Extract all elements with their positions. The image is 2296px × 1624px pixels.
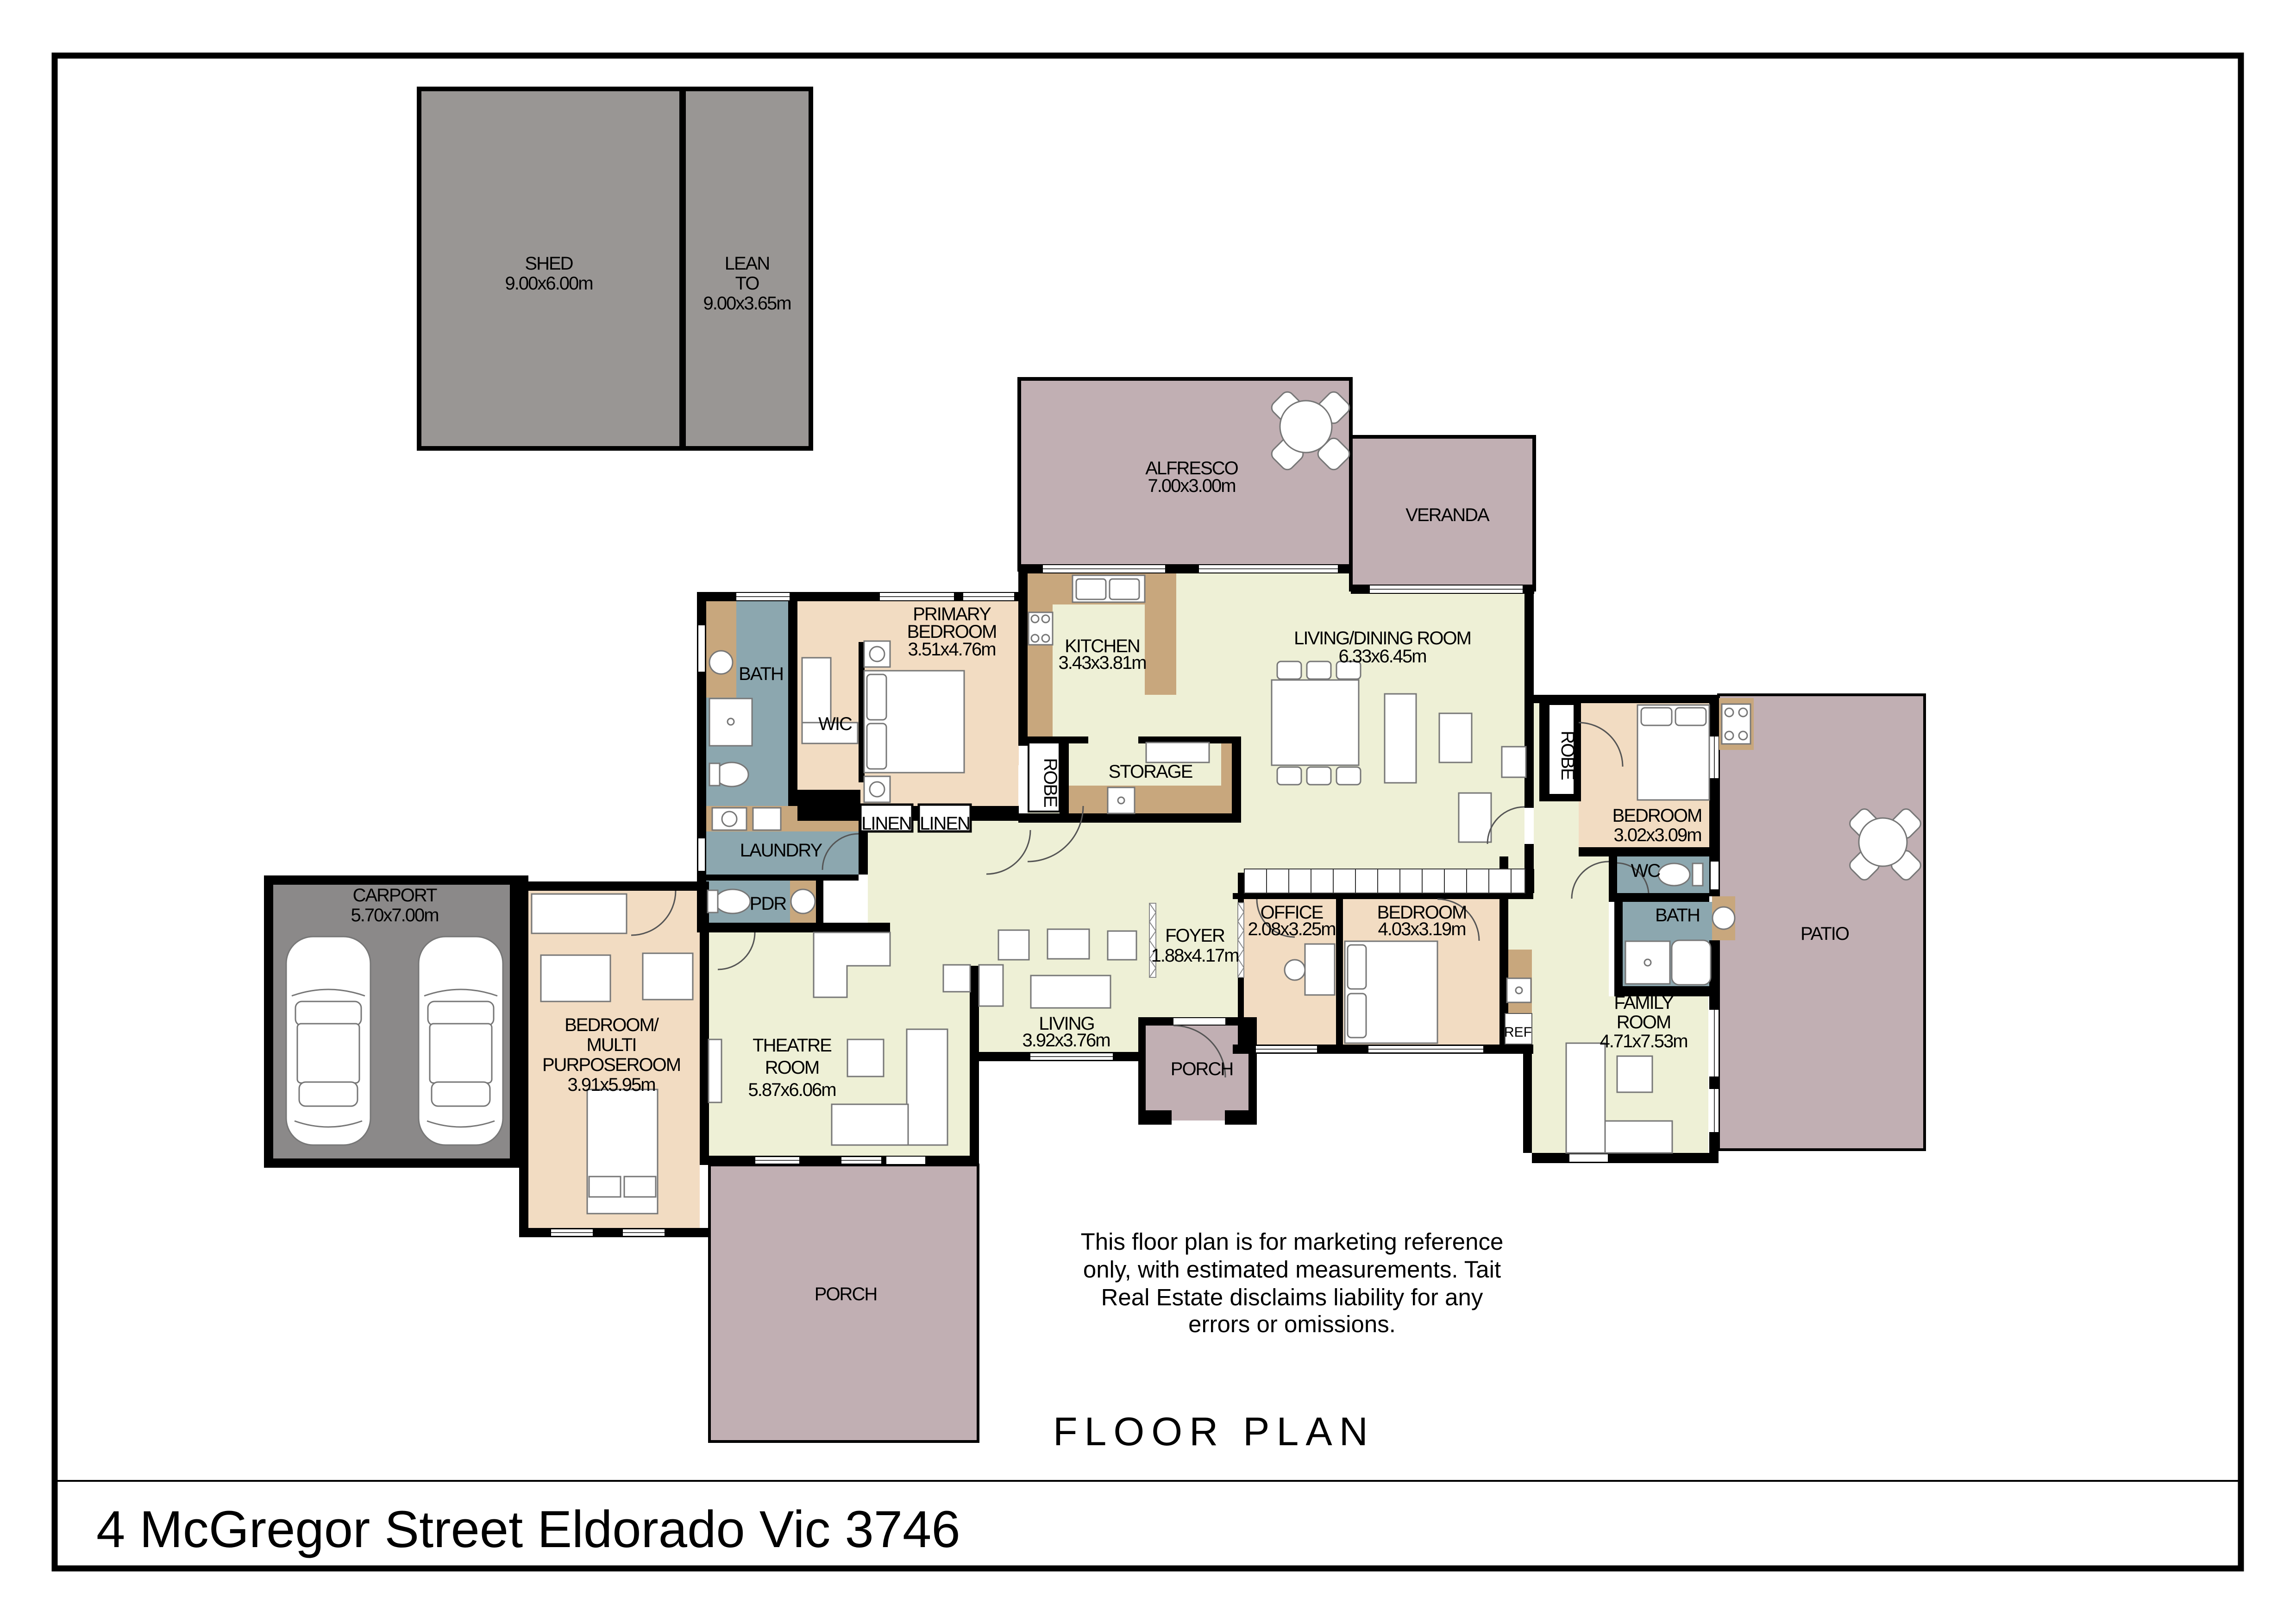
svg-text:VERANDA: VERANDA	[1405, 505, 1490, 525]
svg-text:1.88x4.17m: 1.88x4.17m	[1151, 945, 1238, 966]
svg-text:BEDROOM: BEDROOM	[1612, 806, 1702, 826]
svg-text:REF: REF	[1504, 1025, 1532, 1040]
svg-text:BEDROOM/: BEDROOM/	[565, 1015, 659, 1035]
svg-text:SHED: SHED	[525, 253, 572, 274]
svg-text:errors or omissions.: errors or omissions.	[1188, 1311, 1396, 1337]
svg-text:LINEN: LINEN	[920, 813, 970, 834]
svg-text:5.87x6.06m: 5.87x6.06m	[748, 1080, 835, 1100]
svg-text:LINEN: LINEN	[861, 813, 911, 834]
svg-text:WC: WC	[1631, 861, 1661, 881]
svg-text:ROOM: ROOM	[1617, 1012, 1670, 1032]
svg-text:2.08x3.25m: 2.08x3.25m	[1248, 919, 1335, 939]
svg-text:4 McGregor Street Eldorado Vic: 4 McGregor Street Eldorado Vic 3746	[96, 1500, 960, 1558]
svg-text:MULTI: MULTI	[586, 1035, 636, 1055]
svg-text:BATH: BATH	[1655, 905, 1700, 925]
svg-text:ROBE: ROBE	[1557, 730, 1578, 780]
svg-text:PURPOSEROOM: PURPOSEROOM	[542, 1055, 680, 1075]
svg-text:THEATRE: THEATRE	[753, 1035, 831, 1056]
svg-text:PATIO: PATIO	[1800, 924, 1849, 944]
svg-text:FAMILY: FAMILY	[1614, 993, 1674, 1013]
svg-text:TO: TO	[735, 273, 759, 294]
svg-text:STORAGE: STORAGE	[1109, 762, 1192, 782]
svg-text:5.70x7.00m: 5.70x7.00m	[351, 905, 438, 925]
svg-text:3.43x3.81m: 3.43x3.81m	[1058, 653, 1146, 673]
svg-text:3.02x3.09m: 3.02x3.09m	[1613, 825, 1701, 845]
svg-text:ROOM: ROOM	[765, 1057, 819, 1078]
svg-text:ROBE: ROBE	[1040, 758, 1060, 807]
svg-text:BATH: BATH	[739, 664, 783, 684]
svg-text:9.00x6.00m: 9.00x6.00m	[505, 273, 592, 294]
svg-text:This floor plan is for marketi: This floor plan is for marketing referen…	[1081, 1228, 1504, 1255]
svg-text:FLOOR PLAN: FLOOR PLAN	[1053, 1410, 1375, 1454]
svg-text:3.51x4.76m: 3.51x4.76m	[908, 639, 995, 660]
svg-text:Real Estate disclaims liabilit: Real Estate disclaims liability for any	[1101, 1284, 1483, 1310]
svg-text:LAUNDRY: LAUNDRY	[740, 840, 822, 861]
svg-text:4.03x3.19m: 4.03x3.19m	[1378, 919, 1465, 939]
svg-text:7.00x3.00m: 7.00x3.00m	[1148, 476, 1235, 496]
svg-text:only, with estimated measureme: only, with estimated measurements. Tait	[1083, 1256, 1501, 1283]
svg-text:CARPORT: CARPORT	[353, 885, 437, 906]
svg-text:9.00x3.65m: 9.00x3.65m	[703, 293, 790, 314]
svg-text:3.91x5.95m: 3.91x5.95m	[567, 1075, 655, 1095]
svg-text:LEAN: LEAN	[725, 253, 770, 274]
svg-text:FOYER: FOYER	[1165, 925, 1225, 946]
svg-text:6.33x6.45m: 6.33x6.45m	[1338, 646, 1426, 667]
svg-text:PORCH: PORCH	[1171, 1059, 1233, 1079]
svg-text:PDR: PDR	[750, 894, 787, 914]
svg-text:PORCH: PORCH	[815, 1284, 877, 1304]
svg-text:3.92x3.76m: 3.92x3.76m	[1022, 1030, 1110, 1051]
svg-text:WIC: WIC	[818, 714, 852, 734]
svg-text:LIVING/DINING ROOM: LIVING/DINING ROOM	[1294, 628, 1471, 648]
svg-text:4.71x7.53m: 4.71x7.53m	[1600, 1031, 1687, 1051]
